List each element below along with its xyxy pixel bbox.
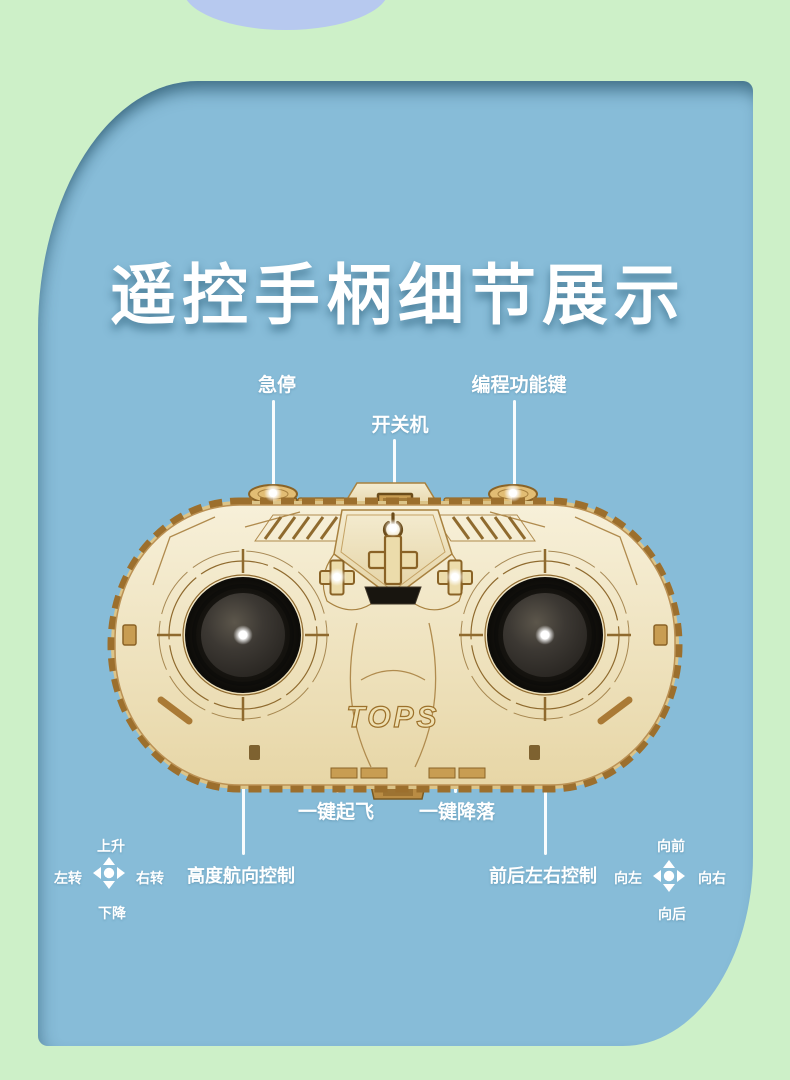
center-window [365, 587, 421, 604]
dpad-up-arrow-icon [103, 857, 115, 865]
left-dpad-icon [92, 856, 126, 890]
left-joystick [186, 578, 300, 692]
remote-controller-illustration: TOPS [95, 465, 695, 805]
dpad-left-arrow-icon [93, 867, 101, 879]
right-dpad-right-label: 向右 [698, 868, 726, 888]
page-title: 遥控手柄细节展示 [48, 242, 748, 338]
dpad-down-arrow-icon [103, 881, 115, 889]
right-dpad-down-label: 向后 [658, 904, 686, 924]
left-dpad-down-label: 下降 [98, 903, 126, 923]
dpad-down-arrow-icon [663, 884, 675, 892]
right-dpad-left-label: 向左 [614, 868, 642, 888]
callout-label-direction-control: 前后左右控制 [489, 862, 597, 888]
right-joystick [488, 578, 602, 692]
callout-label-emergency-stop: 急停 [258, 370, 296, 397]
decorative-blob [183, 0, 389, 30]
brand-engraving: TOPS [346, 701, 439, 734]
left-dpad-left-label: 左转 [54, 868, 82, 888]
dpad-left-arrow-icon [653, 870, 661, 882]
right-dpad-up-label: 向前 [657, 836, 685, 856]
callout-label-power-switch: 开关机 [371, 410, 428, 437]
dpad-right-arrow-icon [677, 870, 685, 882]
callout-label-altitude-heading-control: 高度航向控制 [187, 862, 295, 888]
dpad-center-dot-icon [104, 868, 114, 878]
callout-label-program-function-key: 编程功能键 [471, 370, 566, 397]
dpad-up-arrow-icon [663, 860, 675, 868]
right-dpad-icon [652, 859, 686, 893]
dpad-right-arrow-icon [117, 867, 125, 879]
dpad-center-dot-icon [664, 871, 674, 881]
left-dpad-right-label: 右转 [136, 868, 164, 888]
left-dpad-up-label: 上升 [97, 836, 125, 856]
